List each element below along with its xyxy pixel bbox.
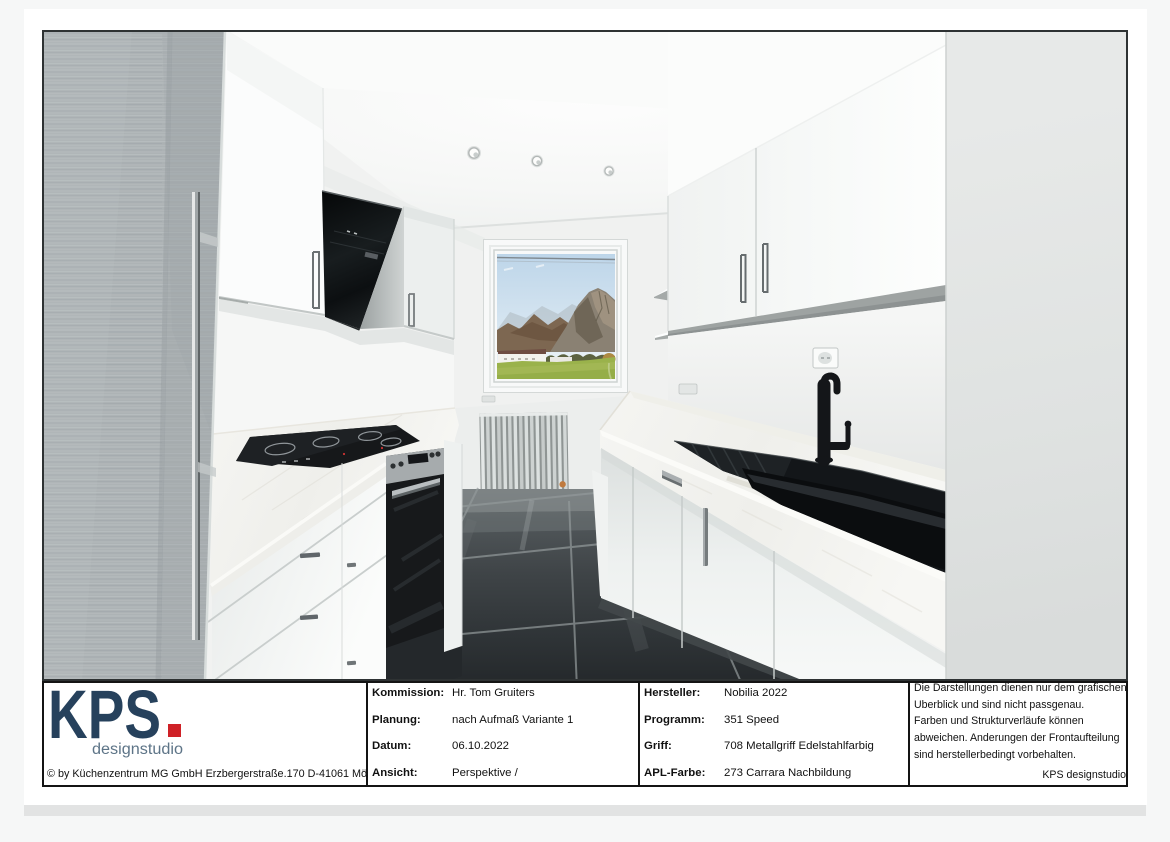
svg-text:designstudio: designstudio [92, 741, 183, 758]
